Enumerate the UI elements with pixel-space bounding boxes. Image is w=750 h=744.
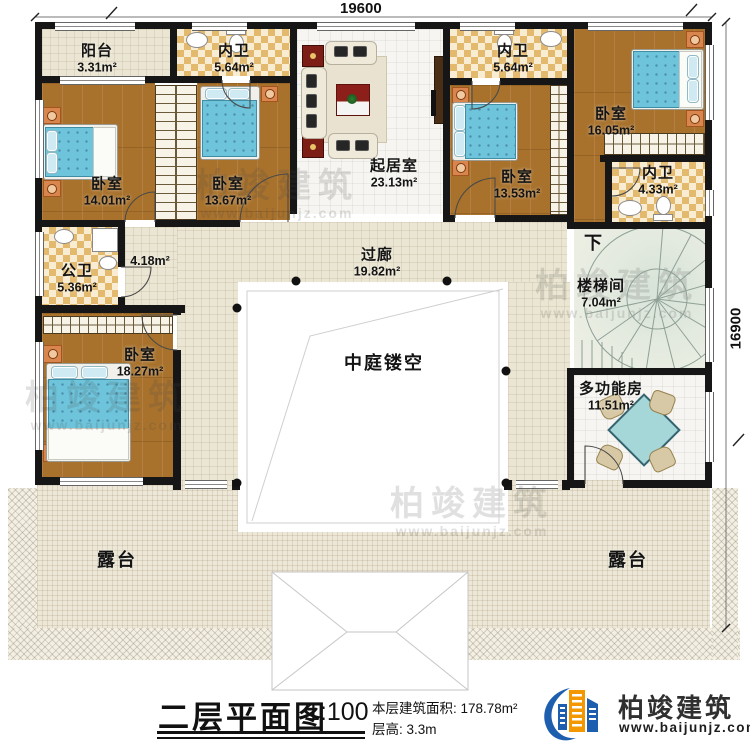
sink: [618, 200, 642, 216]
terrace-edge-right: [712, 488, 738, 660]
wall-segment: [173, 480, 181, 490]
room-label-bath3: 内卫 4.33m²: [638, 166, 678, 197]
pillow: [455, 132, 465, 156]
room-label-bath1: 内卫 5.64m²: [214, 44, 254, 75]
company-logo-icon: [536, 680, 614, 744]
window: [35, 232, 44, 296]
pillow: [229, 89, 249, 99]
window: [460, 22, 515, 31]
wall-segment: [155, 220, 240, 227]
wall-segment: [605, 162, 612, 222]
window: [60, 76, 145, 85]
nightstand: [43, 107, 61, 124]
corridor-floor-left: [177, 282, 238, 487]
room-label-balcony: 阳台 3.31m²: [77, 44, 117, 75]
room-label-bed2: 卧室 13.67m²: [205, 177, 252, 208]
window: [35, 342, 44, 450]
room-label-bed5: 卧室 18.27m²: [117, 348, 164, 379]
room-label-multi: 多功能房 11.51m²: [579, 382, 643, 413]
room-label-terrace-right: 露台: [608, 550, 648, 570]
company-logo-url: www.baijunjz.com: [619, 720, 750, 735]
room-label-bath2: 内卫 5.64m²: [493, 44, 533, 75]
pillow: [52, 367, 77, 378]
bed-mattress: [633, 51, 681, 108]
window: [317, 22, 415, 31]
wall-segment: [173, 350, 181, 480]
wall-segment: [443, 215, 455, 222]
wall-segment: [35, 220, 125, 227]
pillow: [82, 367, 107, 378]
title-underline: [157, 731, 365, 734]
room-label-living: 起居室 23.13m²: [370, 159, 418, 190]
sofa-cushion: [306, 114, 317, 128]
window: [60, 477, 143, 486]
wall-segment: [450, 78, 472, 85]
floor-height-note: 层高: 3.3m: [372, 718, 437, 738]
sink: [186, 32, 208, 48]
bed4-passage-floor: [574, 155, 608, 222]
sofa-cushion: [306, 74, 317, 88]
sofa-cushion: [355, 140, 369, 151]
wardrobe-bed3: [550, 85, 568, 215]
wall-segment: [170, 22, 177, 83]
bed-duvet: [48, 428, 129, 460]
window: [705, 45, 714, 120]
pillow: [47, 153, 57, 173]
sofa-cushion: [353, 46, 367, 57]
hall-floor: [125, 227, 185, 311]
toilet: [656, 196, 671, 215]
title-underline: [157, 737, 365, 739]
wall-segment: [495, 215, 567, 222]
pillow: [47, 131, 57, 151]
atrium-void: [238, 282, 508, 532]
dimension-top: 19600: [340, 0, 382, 17]
wall-segment: [173, 305, 181, 315]
wall-segment: [232, 480, 240, 490]
window: [588, 22, 683, 31]
plan-scale: 1:100: [306, 698, 369, 727]
cabinet: [302, 45, 324, 67]
floor-area-note: 本层建筑面积: 178.78m²: [372, 697, 518, 717]
window: [192, 22, 247, 31]
sofa-top: [325, 41, 377, 65]
wall-segment: [567, 368, 574, 488]
room-label-atrium: 中庭镂空: [344, 353, 424, 373]
wall-segment: [443, 22, 450, 218]
sofa-bottom: [328, 133, 378, 159]
bed-duvet: [93, 127, 116, 177]
room-label-corridor: 过廊 19.82m²: [354, 248, 401, 279]
wall-segment: [177, 76, 222, 83]
sofa-cushion: [306, 94, 317, 108]
wardrobe-bed5: [43, 316, 173, 334]
room-label-bed4: 卧室 16.05m²: [588, 107, 635, 138]
nightstand: [452, 160, 469, 176]
bed-mattress: [465, 104, 516, 159]
nightstand: [686, 31, 704, 48]
wall-segment: [504, 480, 512, 490]
room-label-terrace-left: 露台: [97, 550, 137, 570]
room-label-stair: 楼梯间 7.04m²: [577, 279, 625, 310]
nightstand: [43, 180, 61, 197]
nightstand: [43, 345, 62, 363]
wall-segment: [567, 222, 712, 229]
wall-segment: [567, 22, 574, 222]
wardrobe-bed1-bed2: [155, 85, 197, 220]
room-label-bed1: 卧室 14.01m²: [84, 177, 131, 208]
toilet: [54, 229, 74, 244]
pillow: [206, 89, 226, 99]
window: [35, 100, 44, 178]
room-label-bed3: 卧室 13.53m²: [494, 170, 541, 201]
nightstand: [686, 110, 704, 127]
window: [185, 480, 227, 489]
plant: [347, 94, 357, 104]
nightstand: [261, 86, 278, 102]
floor-plan: 柏竣建筑 www.baijunjz.com 柏竣建筑 www.baijunjz.…: [0, 0, 750, 744]
pillow: [455, 106, 465, 130]
wall-segment: [562, 480, 570, 490]
sink: [540, 31, 562, 47]
wall-segment: [500, 78, 567, 85]
sink: [99, 256, 117, 270]
wall-segment: [118, 227, 125, 267]
window: [516, 480, 558, 489]
wall-segment: [623, 480, 712, 488]
wall-segment: [600, 155, 712, 162]
toilet-tank: [653, 214, 673, 221]
wall-segment: [567, 368, 712, 375]
pillow: [688, 56, 698, 78]
room-label-pubbath: 公卫 5.36m²: [57, 264, 97, 295]
wall-segment: [290, 22, 297, 214]
nightstand: [452, 87, 469, 103]
window: [55, 22, 135, 31]
corridor-floor-right: [508, 282, 570, 480]
window: [705, 190, 714, 216]
room-label-hall: 4.18m²: [130, 254, 170, 268]
shower: [92, 228, 118, 252]
window: [705, 288, 714, 362]
window: [705, 392, 714, 462]
cabinet: [302, 136, 324, 158]
dimension-right: 16900: [728, 305, 745, 353]
terrace-edge-bottom: [8, 628, 740, 660]
wall-segment: [35, 305, 185, 313]
sofa-cushion: [334, 46, 348, 57]
pillow: [688, 80, 698, 102]
bed-mattress: [202, 100, 257, 157]
tv: [431, 90, 436, 116]
sofa-cushion: [336, 140, 350, 151]
sofa-left: [301, 67, 327, 139]
stair-down-label: 下: [584, 233, 604, 253]
